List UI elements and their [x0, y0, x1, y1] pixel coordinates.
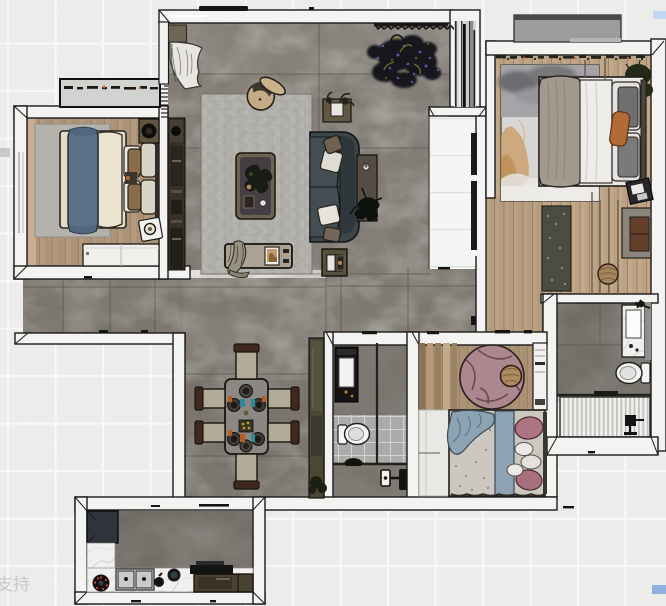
svg-text:支持: 支持 — [0, 575, 30, 594]
